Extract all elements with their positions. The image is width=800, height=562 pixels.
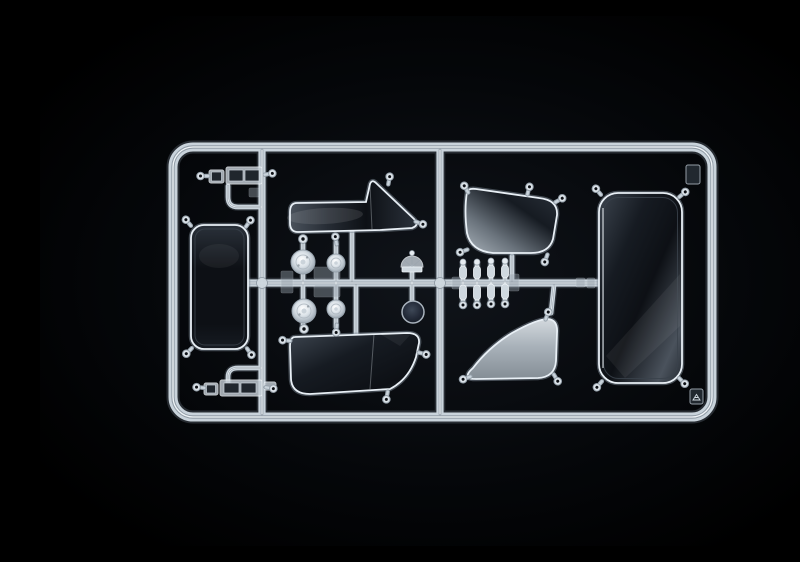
mirror-glass-pane: Rear-view mirror glass pane <box>191 225 248 349</box>
sprue-photo-svg: Clear-parts sprue of a model kit — trans… <box>40 16 800 546</box>
round-tinted-lens: Round tinted lens <box>402 301 424 323</box>
sprue-photo: Clear-parts sprue of a model kit — trans… <box>40 16 800 546</box>
quarter-window-upper-pane: Curved quarter window (upper) <box>466 189 558 253</box>
windscreen-pane: Large windscreen pane <box>599 193 682 383</box>
corner-tab-top-right: Moulding tab, top-right corner <box>686 165 700 184</box>
corner-tab-bottom-right: Moulding tab with arrow mark, bottom-rig… <box>690 389 703 404</box>
door-window-pane: Door window pane <box>290 333 419 394</box>
